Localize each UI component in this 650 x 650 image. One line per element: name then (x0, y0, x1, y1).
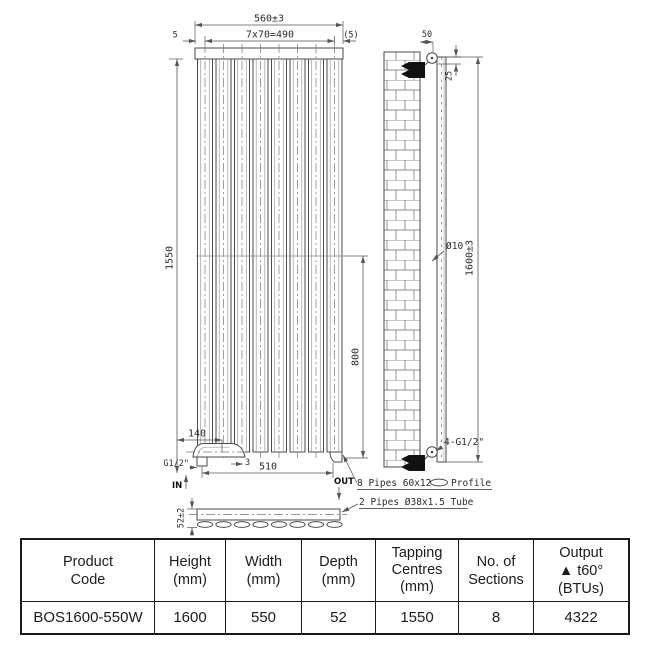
bottom-valve-housing (193, 444, 245, 458)
note-tube-pipes: 2 Pipes Ø38x1.5 Tube (359, 497, 474, 508)
header-line: Sections (468, 571, 524, 589)
value-sections: 8 (459, 602, 534, 633)
radiator-panels (198, 44, 343, 458)
value-output: 4322 (534, 602, 628, 633)
label-hole-diameter: Ø10 (446, 241, 463, 252)
dim-top-offset: 25 (445, 71, 455, 81)
header-line: Output (559, 544, 603, 562)
header-line: (mm) (247, 571, 281, 589)
col-header-output: Output ▲ t60° (BTUs) (534, 540, 628, 602)
note-profile-pipes: 8 Pipes 60x12 (357, 478, 431, 489)
col-header-height: Height (mm) (155, 540, 226, 602)
side-dimensions: 50 25 Ø10 1600±3 4-G1/2" (420, 30, 484, 462)
spec-table: Product Code Height (mm) Width (mm) Dept… (20, 538, 630, 635)
wall-bricks (384, 52, 420, 467)
top-collector (195, 48, 343, 59)
dim-lower-span: 800 (351, 348, 362, 366)
label-inlet: IN (172, 481, 182, 491)
label-outlet: OUT (334, 477, 354, 487)
dim-tapping-height: 1550 (165, 246, 176, 270)
label-connections: 4-G1/2" (444, 437, 484, 448)
dim-overall-width: 560±3 (254, 14, 284, 25)
radiator-spec-sheet: 560±3 7x70=490 5 (5) 1550 800 140 (0, 0, 650, 650)
value-width: 550 (226, 602, 302, 633)
header-line: Tapping (392, 545, 443, 562)
note-profile-suffix: Profile (451, 478, 491, 489)
header-line: Height (169, 553, 211, 571)
header-line: ▲ t60° (BTUs) (534, 562, 628, 598)
dim-depth: 52±2 (177, 508, 187, 528)
profile-oval-icon (431, 479, 448, 486)
technical-drawing: 560±3 7x70=490 5 (5) 1550 800 140 (0, 0, 650, 536)
dim-overall-height: 1600±3 (465, 240, 476, 276)
side-view: 50 25 Ø10 1600±3 4-G1/2" (384, 30, 484, 471)
label-thread-size: G1/2" (163, 459, 189, 469)
value-tapping-centres: 1550 (376, 602, 459, 633)
header-line: (mm) (322, 571, 356, 589)
header-line: Depth (319, 553, 358, 571)
dim-edge-gap-right: (5) (343, 31, 358, 41)
dim-valve-offset: 140 (188, 429, 206, 440)
col-header-width: Width (mm) (226, 540, 302, 602)
col-header-sections: No. of Sections (459, 540, 534, 602)
inlet-connection (197, 457, 207, 466)
dim-edge-gap-left: 5 (172, 31, 177, 41)
header-line: (mm) (173, 571, 207, 589)
dim-bracket-depth: 50 (422, 30, 432, 40)
value-depth: 52 (302, 602, 376, 633)
profile-sections (197, 522, 342, 528)
header-line: Centres (392, 562, 443, 579)
col-header-depth: Depth (mm) (302, 540, 376, 602)
value-product-code: BOS1600-550W (22, 602, 155, 633)
value-height: 1600 (155, 602, 226, 633)
dim-bottom-centres: 510 (259, 462, 277, 473)
dim-gap-small: 3 (245, 458, 250, 468)
header-line: No. of (477, 553, 516, 571)
header-line: Code (71, 571, 106, 589)
col-header-tapping-centres: Tapping Centres (mm) (376, 540, 459, 602)
section-view: 52±2 (177, 498, 348, 536)
outlet-connection (330, 452, 342, 462)
header-line: (mm) (400, 579, 434, 596)
col-header-product-code: Product Code (22, 540, 155, 602)
dim-panel-pitch: 7x70=490 (246, 30, 294, 41)
header-line: Product (63, 553, 113, 571)
header-line: Width (245, 553, 282, 571)
